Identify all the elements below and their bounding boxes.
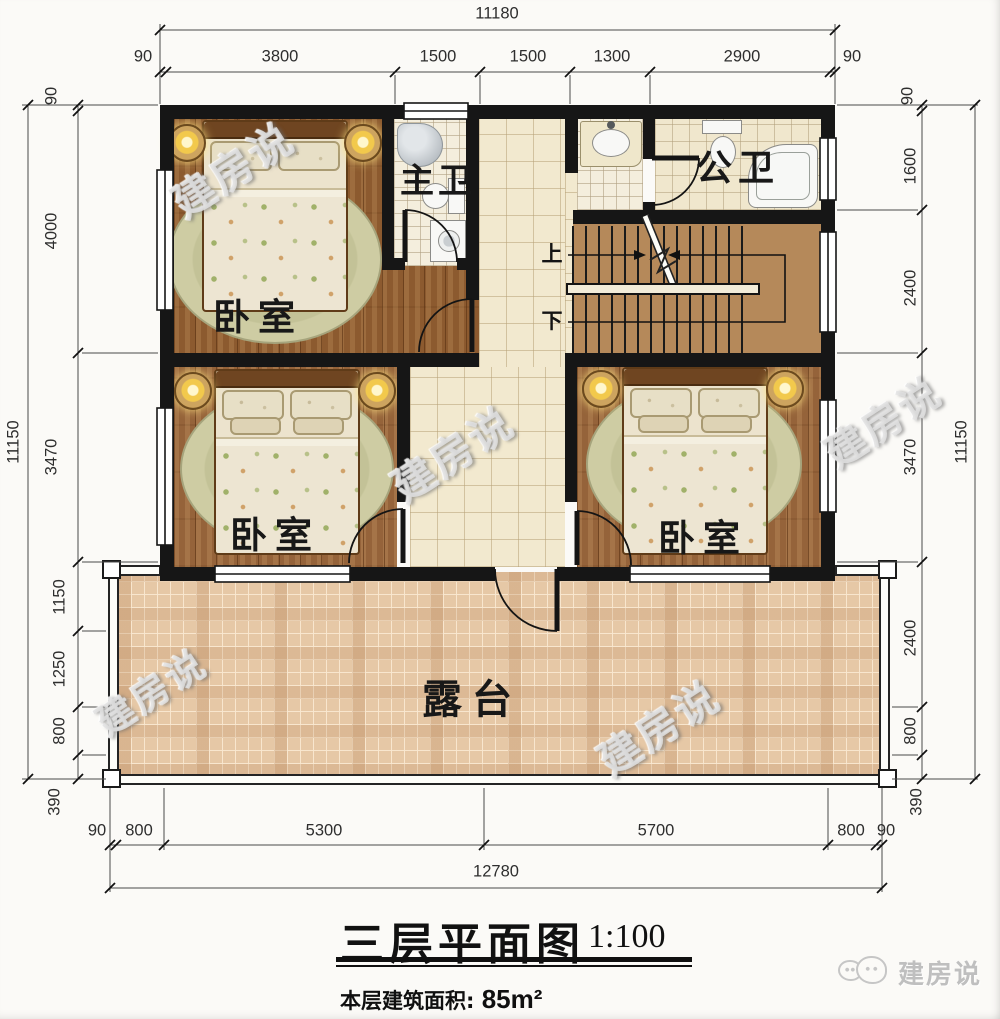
dim-left: 1250 (51, 651, 70, 688)
stair-up-label: 上 (542, 238, 563, 268)
room-label-bedroom: 卧室 (230, 505, 320, 559)
floor-area-label: 本层建筑面积: (340, 989, 474, 1013)
dim-bottom: 800 (125, 822, 153, 841)
room-label-public-bath: 公卫 (696, 139, 780, 191)
chat-bubble-icon (856, 956, 887, 984)
dim-right: 2400 (902, 620, 921, 657)
room-label-terrace: 露台 (422, 667, 522, 725)
dim-right: 90 (899, 87, 918, 105)
dim-right: 3470 (902, 439, 921, 476)
dim-left-total: 11150 (5, 420, 24, 463)
floor-plan-canvas: 11180 90 3800 1500 1500 1300 2900 90 111… (0, 0, 1000, 1019)
stair-handrail (567, 284, 759, 294)
dim-left: 4000 (43, 213, 62, 250)
dim-bottom: 5700 (638, 822, 675, 841)
dim-top-total: 11180 (475, 5, 518, 24)
dim-top: 3800 (262, 48, 299, 67)
room-label-bedroom: 卧室 (213, 287, 303, 341)
dim-left: 800 (51, 717, 70, 745)
dim-left: 3470 (43, 439, 62, 476)
room-label-bedroom: 卧室 (658, 508, 748, 562)
dim-right: 800 (902, 717, 921, 745)
dim-top: 2900 (724, 48, 761, 67)
dim-left: 390 (46, 788, 65, 816)
dim-top: 1500 (420, 48, 457, 67)
dim-bottom: 90 (88, 822, 106, 841)
dim-bottom: 5300 (306, 822, 343, 841)
floor-area-value: 85m² (482, 984, 543, 1014)
title-underline-thick (336, 957, 692, 962)
dim-right-total: 11150 (953, 420, 972, 463)
dim-right: 1600 (902, 148, 921, 185)
brand-logo-text: 建房说 (898, 954, 982, 991)
dim-left: 90 (43, 87, 62, 105)
dim-bottom: 90 (877, 822, 895, 841)
brand-logo: 建房说 (838, 954, 982, 991)
dim-top: 90 (843, 48, 861, 67)
dim-right: 2400 (902, 270, 921, 307)
dim-top: 1500 (510, 48, 547, 67)
dim-bottom-total: 12780 (473, 863, 519, 882)
floor-area-note: 本层建筑面积: 85m² (340, 984, 542, 1015)
stair-down-label: 下 (542, 305, 563, 335)
room-label-master-bath: 主卫 (400, 154, 476, 203)
dim-top: 90 (134, 48, 152, 67)
dim-right: 390 (908, 788, 927, 816)
title-underline-thin (336, 965, 692, 967)
wechat-bubbles-icon (838, 956, 890, 990)
dim-top: 1300 (594, 48, 631, 67)
plan-scale: 1:100 (588, 918, 665, 956)
dim-bottom: 800 (837, 822, 865, 841)
plan-title: 三层平面图 (340, 908, 585, 972)
dim-left: 1150 (51, 579, 70, 614)
